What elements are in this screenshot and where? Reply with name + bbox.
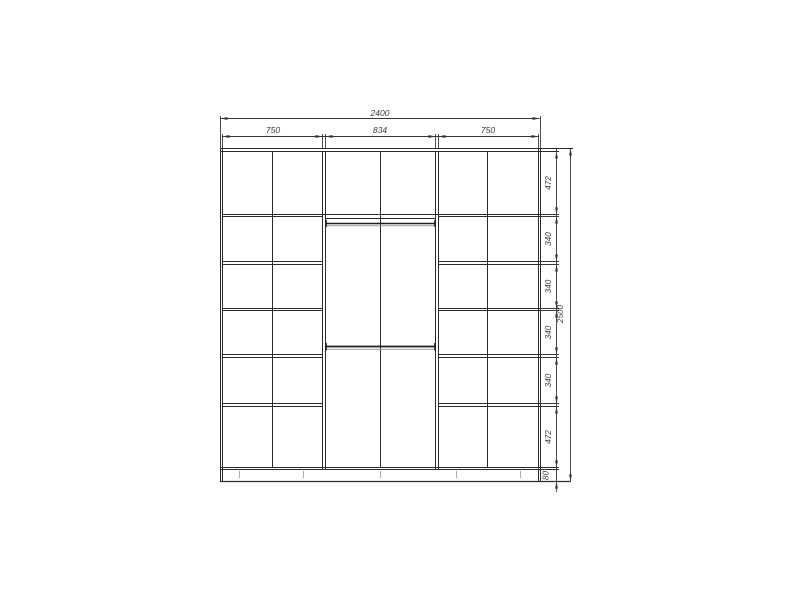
svg-text:340: 340: [544, 325, 553, 339]
svg-text:472: 472: [544, 430, 553, 444]
svg-text:340: 340: [544, 232, 553, 246]
svg-text:340: 340: [544, 279, 553, 293]
svg-text:834: 834: [373, 125, 388, 135]
svg-text:750: 750: [266, 125, 281, 135]
svg-text:750: 750: [481, 125, 496, 135]
svg-text:80: 80: [542, 471, 551, 481]
svg-text:2400: 2400: [369, 108, 389, 118]
svg-text:2500: 2500: [556, 304, 565, 324]
svg-text:472: 472: [544, 176, 553, 190]
svg-text:340: 340: [544, 373, 553, 387]
